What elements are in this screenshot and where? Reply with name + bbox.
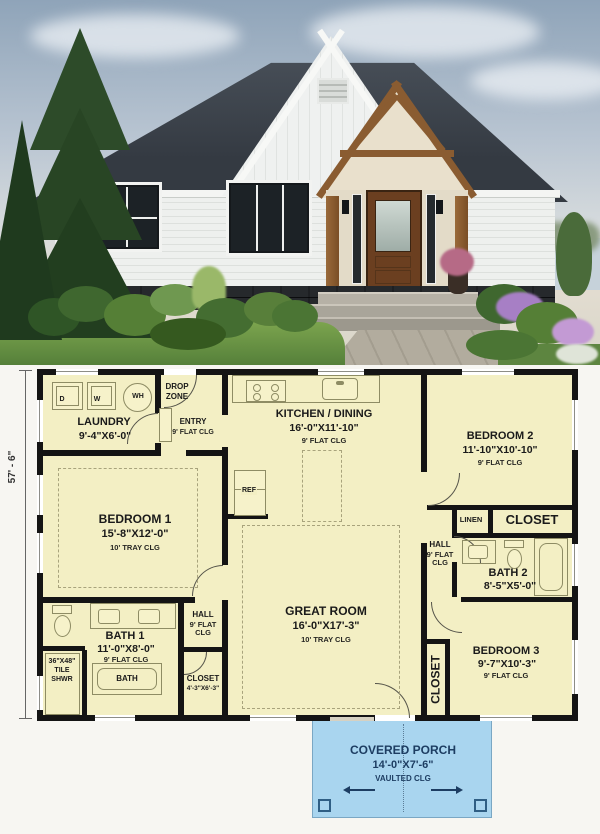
wall (43, 450, 157, 456)
stove-icon (246, 380, 286, 402)
porch-post-symbol (474, 799, 487, 812)
dining-table (302, 450, 342, 522)
toilet-icon (52, 605, 72, 614)
tub-label: BATH (116, 675, 138, 684)
kitchen-dims: 16'-0"X11'-10" (289, 423, 358, 434)
window (37, 475, 43, 515)
bath1-name: BATH 1 (106, 631, 145, 643)
floor-plan: 57' - 6" (0, 365, 600, 834)
bedroom1-dims: 15'-8"X12'-0" (101, 529, 168, 541)
front-door (366, 190, 422, 290)
conifer-right (556, 212, 592, 296)
drop-zone-bench (159, 408, 172, 442)
bedroom3-clg: 9' FLAT CLG (484, 672, 529, 680)
wall (427, 639, 447, 644)
window (95, 715, 135, 721)
tile-shower-line1: 36"X48" (49, 658, 76, 666)
window (572, 400, 578, 450)
wall (427, 505, 578, 510)
porch-arrow-right-head (456, 786, 463, 794)
shrub (466, 330, 538, 360)
wall (82, 650, 87, 721)
porch-step (308, 304, 488, 317)
great-room-dims: 16'-0"X17'-3" (292, 621, 359, 633)
door-glass (375, 200, 411, 252)
bedroom3-dims: 9'-7"X10'-3" (478, 659, 536, 670)
wall-sconce-icon (436, 200, 443, 214)
washer-label: W (94, 396, 101, 404)
porch-post-left (326, 196, 339, 300)
shrub (272, 300, 318, 332)
water-heater-label: WH (132, 393, 144, 401)
dimension-tick (19, 370, 32, 371)
bedroom3-name: BEDROOM 3 (473, 646, 540, 658)
linen-label: LINEN (460, 516, 483, 524)
toilet-icon (504, 540, 524, 548)
sidelight-left (352, 194, 362, 284)
cloud (470, 62, 600, 100)
bedroom2-clg: 9' FLAT CLG (478, 459, 523, 467)
porch-clg: VAULTED CLG (375, 775, 431, 784)
dryer-icon (52, 382, 83, 410)
wall (222, 520, 228, 565)
door-panel (375, 270, 411, 284)
tile-shower-line3: SHWR (51, 676, 72, 684)
bedroom2-dims: 11'-10"X10'-10" (462, 445, 537, 456)
dryer-label: D (59, 396, 64, 404)
bathtub-icon (534, 538, 568, 596)
window (572, 640, 578, 694)
porch-arrow-left (349, 789, 375, 791)
closet2-label: CLOSET (506, 513, 559, 527)
window (56, 369, 98, 375)
entry-clg: 9' FLAT CLG (172, 429, 214, 437)
closet1-dims: 4'-3"X6'-3" (187, 685, 219, 692)
dimension-tick (19, 718, 32, 719)
laundry-dims: 9'-4"X6'-0" (79, 431, 131, 442)
cloud (30, 14, 240, 58)
wall (155, 369, 161, 413)
kitchen-clg: 9' FLAT CLG (302, 437, 347, 445)
window-center (226, 180, 312, 256)
fridge-label: REF (241, 487, 257, 495)
porch-arrow-right (431, 789, 457, 791)
porch-name: COVERED PORCH (350, 744, 456, 757)
house-photo (0, 0, 600, 365)
window (37, 676, 43, 710)
porch-post-symbol (318, 799, 331, 812)
hall-left-name: HALL (192, 611, 213, 620)
window (37, 400, 43, 442)
toilet-icon (507, 549, 522, 569)
sidelight-right (426, 194, 436, 284)
closet3-label: CLOSET (430, 655, 443, 704)
gable-vent-icon (317, 78, 349, 104)
dimension-line (25, 371, 26, 719)
wall (452, 562, 457, 597)
wall (222, 369, 228, 415)
kitchen-name: KITCHEN / DINING (276, 409, 373, 421)
wall (43, 646, 85, 651)
door-panel (375, 256, 411, 268)
bedroom1-clg: 10' TRAY CLG (110, 544, 160, 552)
shrub (150, 318, 226, 350)
purple-flowers (552, 318, 594, 346)
porch-arrow-left-head (343, 786, 350, 794)
hall-right-name: HALL (429, 541, 450, 550)
bath1-dims: 11'-0"X8'-0" (97, 644, 155, 655)
washer-icon (87, 382, 116, 410)
toilet-icon (54, 615, 71, 637)
wall (186, 450, 222, 456)
pot-flowers (440, 248, 474, 276)
bedroom1-name: BEDROOM 1 (99, 513, 172, 526)
hall-left-clg: 9' FLAT CLG (184, 621, 222, 637)
wall (421, 597, 427, 721)
bedroom2-name: BEDROOM 2 (467, 431, 534, 443)
drop-zone-line2: ZONE (166, 393, 188, 402)
entry-name: ENTRY (180, 418, 207, 427)
porch-dims: 14'-0"X7'-6" (373, 760, 434, 772)
bath2-name: BATH 2 (489, 568, 528, 580)
window (572, 544, 578, 586)
kitchen-sink-icon (322, 378, 358, 400)
bath2-dims: 8'-5"X5'-0" (484, 581, 536, 592)
wall (461, 597, 578, 602)
bath1-clg: 9' FLAT CLG (104, 656, 149, 664)
wall-sconce-icon (342, 200, 349, 214)
wall (421, 369, 427, 472)
great-room-clg: 10' TRAY CLG (301, 636, 351, 644)
closet1-name: CLOSET (187, 675, 219, 684)
drop-zone-line1: DROP (165, 383, 188, 392)
laundry-name: LAUNDRY (77, 417, 130, 429)
page: 57' - 6" (0, 0, 600, 834)
wall (222, 647, 228, 721)
wall (222, 600, 228, 647)
wall (445, 639, 450, 721)
great-room-name: GREAT ROOM (285, 605, 367, 618)
sink-icon (468, 545, 488, 559)
overall-dimension-label: 57' - 6" (7, 432, 21, 502)
window (37, 533, 43, 573)
sink-icon (138, 609, 160, 624)
window (462, 369, 514, 375)
white-flowers (556, 344, 598, 364)
window (250, 715, 296, 721)
truss-beam (340, 150, 454, 157)
sink-icon (98, 609, 120, 624)
hall-right-clg: 9' FLAT CLG (421, 551, 459, 567)
tile-shower-line2: TILE (54, 667, 69, 675)
covered-porch: COVERED PORCH 14'-0"X7'-6" VAULTED CLG (312, 721, 492, 818)
